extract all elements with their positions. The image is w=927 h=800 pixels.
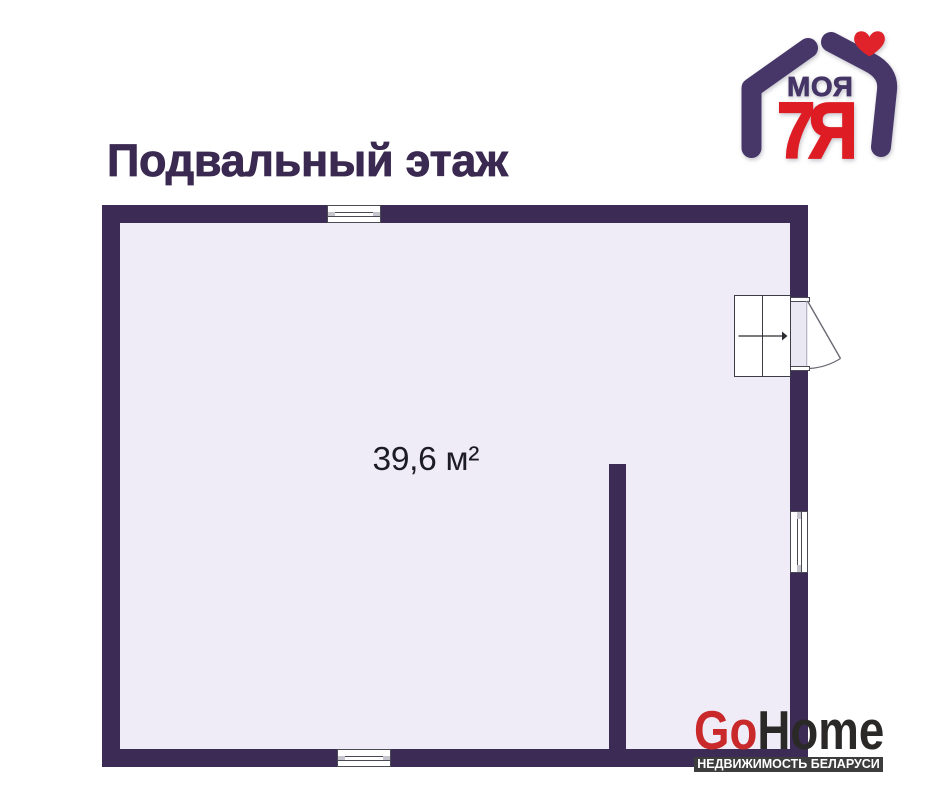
svg-text:7Я: 7Я	[777, 86, 854, 170]
